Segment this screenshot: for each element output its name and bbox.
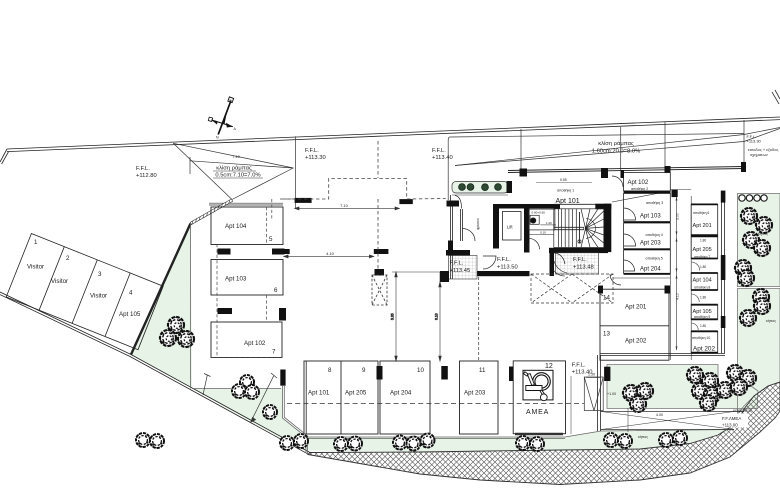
svg-text:Apt 101: Apt 101 <box>308 390 330 397</box>
svg-text:AMEA: AMEA <box>526 409 549 416</box>
svg-text:N: N <box>216 136 219 140</box>
svg-text:0.60×0.60: 0.60×0.60 <box>532 211 546 215</box>
svg-text:κήπος: κήπος <box>766 319 776 323</box>
svg-text:+113.48: +113.48 <box>573 265 594 271</box>
svg-text:αποθήκη 5: αποθήκη 5 <box>646 257 663 261</box>
svg-text:+1.00: +1.00 <box>607 392 616 396</box>
svg-text:12: 12 <box>545 363 553 370</box>
svg-text:Apt 104: Apt 104 <box>225 223 247 230</box>
svg-text:5.55: 5.55 <box>560 178 567 182</box>
svg-text:8: 8 <box>328 367 332 374</box>
svg-text:+113.30: +113.30 <box>747 139 762 144</box>
svg-text:αποθήκη 6: αποθήκη 6 <box>693 211 709 215</box>
svg-text:1.80: 1.80 <box>700 265 706 269</box>
svg-text:κλίση ράμπας: κλίση ράμπας <box>216 165 252 172</box>
svg-text:κήπος: κήπος <box>758 232 768 236</box>
svg-text:4.10: 4.10 <box>676 293 680 300</box>
svg-text:7.10: 7.10 <box>232 154 241 159</box>
svg-text:10: 10 <box>417 367 424 374</box>
svg-text:Apt 204: Apt 204 <box>640 267 661 273</box>
svg-text:αποθήκη 9: αποθήκη 9 <box>694 315 710 319</box>
svg-text:Apt 103: Apt 103 <box>225 276 247 283</box>
svg-text:Apt 201: Apt 201 <box>693 223 712 229</box>
svg-text:Apt 201: Apt 201 <box>625 304 647 311</box>
svg-text:4.10: 4.10 <box>326 251 335 256</box>
svg-text:Apt 203: Apt 203 <box>640 241 661 247</box>
svg-text:Apt 203: Apt 203 <box>464 390 486 397</box>
svg-text:5: 5 <box>269 236 273 243</box>
svg-text:+113.40: +113.40 <box>432 155 453 161</box>
svg-text:13: 13 <box>603 331 610 338</box>
svg-text:1.80: 1.80 <box>700 324 706 328</box>
svg-text:1: 1 <box>34 239 38 246</box>
svg-text:F.F.L.: F.F.L. <box>450 261 464 267</box>
svg-text:6.10: 6.10 <box>435 313 439 320</box>
svg-text:3: 3 <box>98 271 102 278</box>
svg-text:14: 14 <box>603 295 610 302</box>
svg-text:4: 4 <box>129 290 133 297</box>
svg-text:κήπος: κήπος <box>638 435 648 439</box>
svg-text:Visitor: Visitor <box>27 264 44 271</box>
svg-text:οχηματων: οχηματων <box>750 152 768 157</box>
svg-text:9: 9 <box>362 367 366 374</box>
svg-text:3.00: 3.00 <box>676 213 680 220</box>
svg-text:1.80: 1.80 <box>700 239 706 243</box>
svg-text:Apt 202: Apt 202 <box>693 346 715 353</box>
svg-text:0.5cm:7.10=7.0%: 0.5cm:7.10=7.0% <box>215 173 260 179</box>
svg-text:φρεατιο: φρεατιο <box>476 218 480 230</box>
svg-text:0.10: 0.10 <box>540 230 546 234</box>
svg-text:+113.30: +113.30 <box>305 155 326 161</box>
svg-text:F.F.L.: F.F.L. <box>432 148 446 154</box>
svg-text:1.80: 1.80 <box>700 296 706 300</box>
svg-text:αποθήκη 10: αποθήκη 10 <box>692 336 710 340</box>
svg-text:+113.50: +113.50 <box>497 265 518 271</box>
svg-text:Lift: Lift <box>507 225 513 230</box>
svg-text:Apt 103: Apt 103 <box>640 214 661 220</box>
svg-text:2: 2 <box>66 255 70 262</box>
svg-text:F.F.L.: F.F.L. <box>305 148 319 154</box>
svg-text:+112.80: +112.80 <box>136 173 157 179</box>
svg-text:11: 11 <box>479 367 486 374</box>
svg-text:κλίση ράμπας: κλίση ράμπας <box>598 140 634 147</box>
svg-text:Apt 102: Apt 102 <box>244 340 266 347</box>
svg-text:+113.45: +113.45 <box>450 268 471 274</box>
svg-text:αποθήκη 7: αποθήκη 7 <box>694 255 710 259</box>
svg-text:αποθήκη 3: αποθήκη 3 <box>646 201 663 205</box>
svg-text:F.F.L.: F.F.L. <box>497 257 511 263</box>
svg-text:1.60cm:20.0=8.0%: 1.60cm:20.0=8.0% <box>592 149 641 155</box>
svg-text:+113.00: +113.00 <box>722 423 738 428</box>
svg-text:Apt 102: Apt 102 <box>628 180 649 186</box>
svg-text:Apt 105: Apt 105 <box>119 311 141 318</box>
svg-text:αποθήκη 8: αποθήκη 8 <box>694 286 710 290</box>
svg-text:7: 7 <box>272 349 276 356</box>
svg-text:αποθήκη 2: αποθήκη 2 <box>631 187 648 191</box>
svg-text:Apt 205: Apt 205 <box>693 247 712 253</box>
svg-text:Apt 104: Apt 104 <box>693 278 712 284</box>
svg-text:Apt 101: Apt 101 <box>556 198 580 205</box>
svg-text:αποθήκη 4: αποθήκη 4 <box>646 233 663 237</box>
svg-text:4.00: 4.00 <box>656 413 663 417</box>
svg-text:F.F.L.: F.F.L. <box>136 166 150 172</box>
svg-text:1.30: 1.30 <box>588 373 595 377</box>
svg-text:6: 6 <box>274 287 278 294</box>
svg-text:ασφαλτος: ασφαλτος <box>733 408 752 413</box>
svg-text:Visitor: Visitor <box>90 293 107 300</box>
svg-text:Apt 202: Apt 202 <box>625 338 647 345</box>
svg-text:5.35: 5.35 <box>391 313 395 320</box>
svg-text:7.10: 7.10 <box>340 203 349 208</box>
svg-text:1.20: 1.20 <box>546 221 552 225</box>
svg-text:F.F.L.: F.F.L. <box>572 363 586 369</box>
svg-text:Apt 205: Apt 205 <box>345 390 367 397</box>
svg-text:Visitor: Visitor <box>51 278 68 285</box>
svg-text:Apt 204: Apt 204 <box>390 390 412 397</box>
svg-text:αποθήκη 1: αποθήκη 1 <box>557 189 574 193</box>
svg-text:F.F.ΛΜΕΑ: F.F.ΛΜΕΑ <box>722 416 741 421</box>
svg-text:F.F.L.: F.F.L. <box>573 257 587 263</box>
